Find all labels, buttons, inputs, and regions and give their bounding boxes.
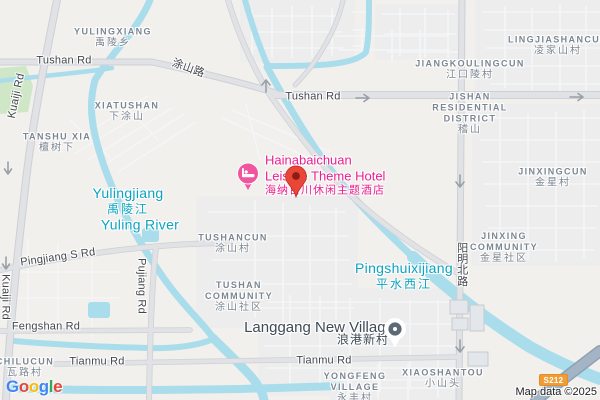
village-poi-pin[interactable]	[384, 318, 406, 348]
map-canvas[interactable]: YULINGXIANG禹陵乡XIATUSHAN下涂山TANSHU XIA檀树下L…	[0, 0, 600, 400]
google-logo-letter: o	[29, 377, 39, 396]
map-data-attribution: Map data ©2025	[516, 386, 598, 398]
google-logo-letter: e	[53, 377, 62, 396]
destination-pin-icon[interactable]	[286, 166, 307, 197]
route-badge-s212: S212	[539, 374, 568, 386]
google-logo[interactable]: Google	[6, 377, 62, 397]
google-logo-letter: g	[39, 377, 49, 396]
hotel-lodging-icon[interactable]	[238, 163, 259, 190]
google-logo-letter: o	[19, 377, 29, 396]
map-markers-layer	[0, 0, 600, 400]
google-logo-letter: G	[6, 377, 19, 396]
